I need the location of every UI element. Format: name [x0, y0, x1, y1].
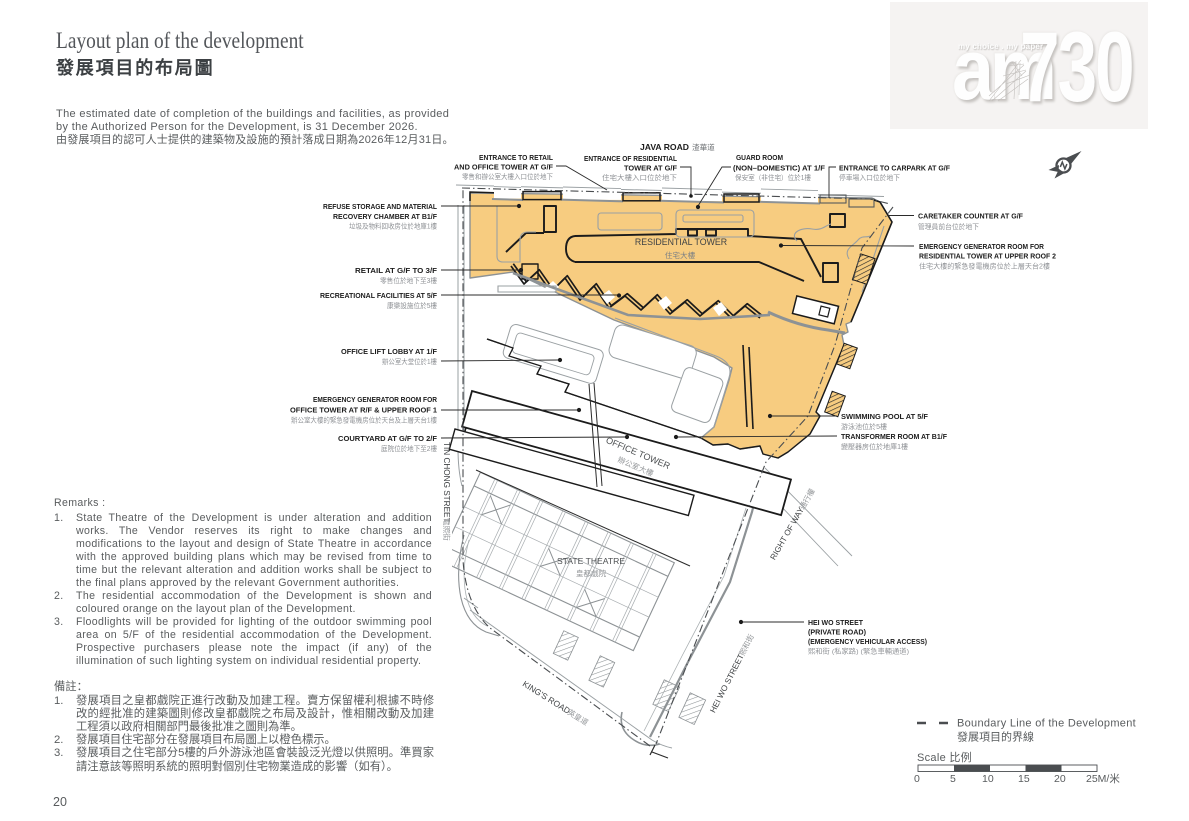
- svg-text:25M/米: 25M/米: [1086, 772, 1120, 785]
- svg-text:Boundary Line of the Developme: Boundary Line of the Development: [957, 718, 1136, 730]
- svg-text:EMERGENCY GENERATOR ROOM FOR: EMERGENCY GENERATOR ROOM FOR: [313, 395, 438, 404]
- svg-text:GUARD ROOM: GUARD ROOM: [736, 153, 783, 162]
- svg-text:垃圾及物料回收房位於地庫1樓: 垃圾及物料回收房位於地庫1樓: [349, 222, 437, 231]
- svg-text:ENTRANCE TO CARPARK AT G/F: ENTRANCE TO CARPARK AT G/F: [839, 164, 950, 173]
- svg-text:SWIMMING POOL AT 5/F: SWIMMING POOL AT 5/F: [841, 412, 928, 421]
- svg-text:零售位於地下至3樓: 零售位於地下至3樓: [380, 276, 437, 285]
- svg-text:AND OFFICE TOWER AT G/F: AND OFFICE TOWER AT G/F: [454, 163, 553, 172]
- svg-text:JAVA ROAD: JAVA ROAD: [640, 142, 689, 152]
- svg-text:發展項目的界線: 發展項目的界線: [957, 730, 1034, 744]
- svg-text:0: 0: [914, 773, 920, 785]
- svg-text:保安室（非住宅）位於1樓: 保安室（非住宅）位於1樓: [735, 173, 811, 182]
- svg-text:STATE THEATRE: STATE THEATRE: [557, 556, 625, 566]
- svg-text:辦公室大堂位於1樓: 辦公室大堂位於1樓: [382, 357, 437, 366]
- svg-text:庭院位於地下至2樓: 庭院位於地下至2樓: [381, 444, 437, 453]
- svg-text:住宅大樓的緊急發電機房位於上層天台2樓: 住宅大樓的緊急發電機房位於上層天台2樓: [919, 262, 1050, 271]
- svg-text:OFFICE TOWER AT R/F & UPPER RO: OFFICE TOWER AT R/F & UPPER ROOF 1: [290, 406, 437, 415]
- svg-text:RESIDENTIAL TOWER AT UPPER ROO: RESIDENTIAL TOWER AT UPPER ROOF 2: [919, 252, 1056, 261]
- svg-text:ENTRANCE OF RESIDENTIAL: ENTRANCE OF RESIDENTIAL: [584, 154, 677, 163]
- svg-text:停車場入口位於地下: 停車場入口位於地下: [839, 173, 900, 182]
- svg-text:電照街: 電照街: [442, 518, 452, 541]
- svg-text:RESIDENTIAL TOWER: RESIDENTIAL TOWER: [635, 237, 727, 247]
- svg-text:RECOVERY CHAMBER AT B1/F: RECOVERY CHAMBER AT B1/F: [333, 212, 437, 221]
- svg-text:HEI WO STREET: HEI WO STREET: [708, 653, 745, 715]
- svg-text:15: 15: [1018, 773, 1030, 785]
- svg-text:熙和街 (私家路) (緊急車輛通道): 熙和街 (私家路) (緊急車輛通道): [808, 647, 909, 656]
- svg-text:EMERGENCY GENERATOR ROOM FOR: EMERGENCY GENERATOR ROOM FOR: [919, 242, 1045, 251]
- svg-text:游泳池位於5樓: 游泳池位於5樓: [841, 422, 887, 431]
- svg-text:OFFICE LIFT LOBBY AT 1/F: OFFICE LIFT LOBBY AT 1/F: [341, 347, 437, 356]
- svg-text:變壓器房位於地庫1樓: 變壓器房位於地庫1樓: [841, 442, 908, 451]
- svg-text:(EMERGENCY VEHICULAR ACCESS): (EMERGENCY VEHICULAR ACCESS): [808, 637, 927, 646]
- svg-text:辦公室大樓的緊急發電機房位於天台及上層天台1樓: 辦公室大樓的緊急發電機房位於天台及上層天台1樓: [291, 416, 437, 425]
- svg-text:英皇道: 英皇道: [566, 707, 591, 728]
- svg-text:COURTYARD AT G/F TO 2/F: COURTYARD AT G/F TO 2/F: [338, 434, 437, 443]
- svg-text:住宅大樓入口位於地下: 住宅大樓入口位於地下: [602, 173, 677, 182]
- svg-text:熙和街: 熙和街: [737, 632, 756, 657]
- svg-text:20: 20: [1054, 773, 1066, 785]
- svg-text:康樂設施位於5樓: 康樂設施位於5樓: [387, 301, 437, 310]
- svg-text:住宅大樓: 住宅大樓: [665, 250, 696, 260]
- svg-text:渣華道: 渣華道: [692, 142, 715, 152]
- svg-text:TOWER AT G/F: TOWER AT G/F: [624, 164, 677, 173]
- svg-text:Scale 比例: Scale 比例: [917, 750, 972, 764]
- svg-text:RETAIL AT G/F TO 3/F: RETAIL AT G/F TO 3/F: [355, 266, 438, 275]
- svg-text:REFUSE STORAGE AND MATERIAL: REFUSE STORAGE AND MATERIAL: [323, 202, 437, 211]
- svg-text:CARETAKER COUNTER AT G/F: CARETAKER COUNTER AT G/F: [918, 212, 1023, 221]
- svg-text:(PRIVATE ROAD): (PRIVATE ROAD): [808, 628, 867, 637]
- svg-text:(NON–DOMESTIC) AT 1/F: (NON–DOMESTIC) AT 1/F: [733, 164, 825, 173]
- svg-text:5: 5: [950, 773, 956, 785]
- svg-text:通行權: 通行權: [797, 486, 817, 511]
- svg-text:皇都戲院: 皇都戲院: [576, 568, 607, 578]
- svg-text:RECREATIONAL FACILITIES AT 5/F: RECREATIONAL FACILITIES AT 5/F: [320, 291, 437, 300]
- svg-text:零售和辦公室大樓入口位於地下: 零售和辦公室大樓入口位於地下: [462, 172, 553, 181]
- svg-text:KING'S ROAD: KING'S ROAD: [521, 679, 572, 716]
- svg-text:ENTRANCE TO RETAIL: ENTRANCE TO RETAIL: [479, 153, 553, 162]
- svg-text:管理員前台位於地下: 管理員前台位於地下: [918, 222, 979, 231]
- svg-text:HEI WO STREET: HEI WO STREET: [808, 618, 863, 627]
- svg-text:TRANSFORMER ROOM AT B1/F: TRANSFORMER ROOM AT B1/F: [841, 432, 947, 441]
- svg-text:TIN CHONG STREET: TIN CHONG STREET: [442, 442, 451, 523]
- svg-text:10: 10: [982, 773, 994, 785]
